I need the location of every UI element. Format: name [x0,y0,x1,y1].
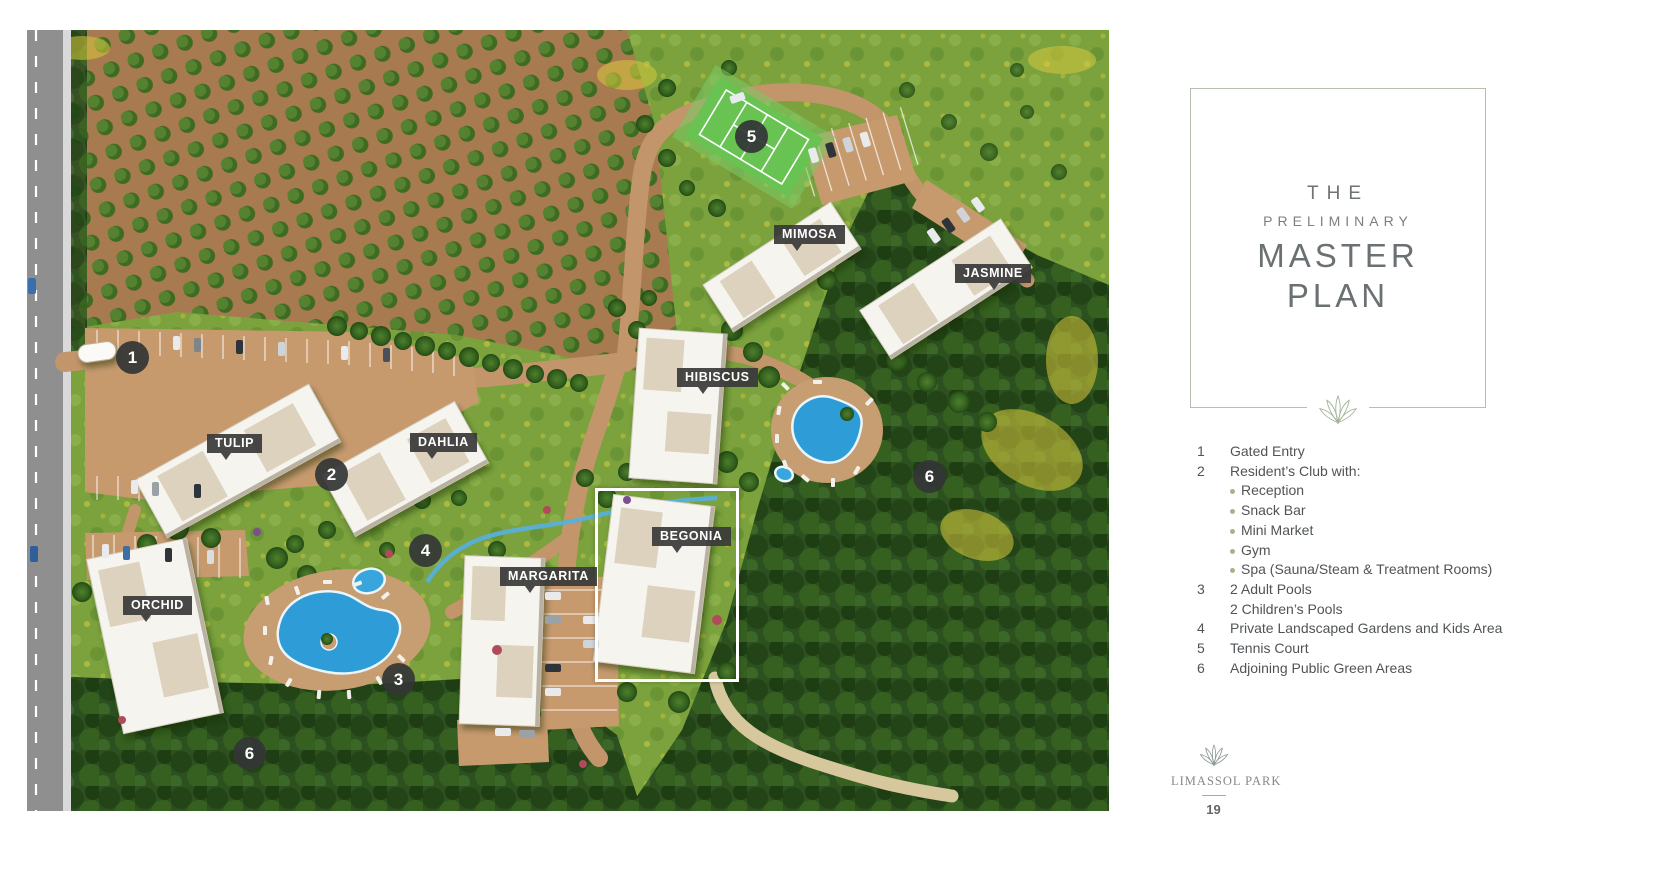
begonia-highlight-box [595,488,739,682]
brand-name: LIMASSOL PARK [1171,774,1256,789]
marker-2-residents-club: 2 [315,458,348,491]
bullet-dot-icon [1230,529,1235,534]
legend-item-3: 3 2 Adult Pools [1197,580,1527,600]
bullet-dot-icon [1230,489,1235,494]
building-label-margarita: MARGARITA [500,567,597,586]
legend-bullet-reception: Reception [1197,481,1527,501]
legend-text: Adjoining Public Green Areas [1230,659,1527,679]
legend-text: Gym [1241,541,1527,561]
legend-item-1: 1 Gated Entry [1197,442,1527,462]
bullet-dot-icon [1230,568,1235,573]
legend-number: 3 [1197,580,1230,600]
legend-text: Tennis Court [1230,639,1527,659]
legend-bullet-snack-bar: Snack Bar [1197,501,1527,521]
site-plan-svg [27,30,1109,811]
legend-item-2: 2 Resident’s Club with: [1197,462,1527,482]
legend-number: 5 [1197,639,1230,659]
legend-text: Gated Entry [1230,442,1527,462]
marker-4-gardens: 4 [409,534,442,567]
legend-text: Resident’s Club with: [1230,462,1527,482]
title-the: THE [1191,183,1485,205]
building-label-dahlia: DAHLIA [410,433,477,452]
legend-text: 2 Children’s Pools [1230,600,1527,620]
info-panel: THE PRELIMINARY MASTER PLAN 1 Gated Entr… [1109,0,1653,886]
title-preliminary: PRELIMINARY [1191,213,1485,229]
footer-divider [1202,795,1226,796]
marker-6-green-south: 6 [233,737,266,770]
legend-item-5: 5 Tennis Court [1197,639,1527,659]
lotus-leaf-icon [1307,392,1369,426]
bullet-dot-icon [1230,509,1235,514]
building-label-tulip: TULIP [207,434,262,453]
bullet-dot-icon [1230,549,1235,554]
page-footer: LIMASSOL PARK 19 [1171,742,1256,817]
master-plan-map: MIMOSA JASMINE HIBISCUS TULIP DAHLIA BEG… [27,30,1109,811]
master-plan-card: THE PRELIMINARY MASTER PLAN [1190,88,1486,408]
legend-bullet-spa: Spa (Sauna/Steam & Treatment Rooms) [1197,560,1527,580]
legend: 1 Gated Entry 2 Resident’s Club with: Re… [1197,442,1527,678]
legend-text: Mini Market [1241,521,1527,541]
marker-3-pools: 3 [382,663,415,696]
title-master: MASTER [1191,237,1485,275]
marker-1-gated-entry: 1 [116,341,149,374]
brochure-page: MIMOSA JASMINE HIBISCUS TULIP DAHLIA BEG… [0,0,1653,886]
brand-lotus-icon [1198,754,1230,771]
building-label-jasmine: JASMINE [955,264,1031,283]
building-label-orchid: ORCHID [123,596,192,615]
legend-bullet-gym: Gym [1197,541,1527,561]
page-number: 19 [1171,802,1256,817]
legend-text: Private Landscaped Gardens and Kids Area [1230,619,1527,639]
legend-number: 1 [1197,442,1230,462]
marker-6-green-east: 6 [913,460,946,493]
legend-number [1197,600,1230,620]
legend-text: Spa (Sauna/Steam & Treatment Rooms) [1241,560,1527,580]
title-plan: PLAN [1191,277,1485,315]
legend-item-4: 4 Private Landscaped Gardens and Kids Ar… [1197,619,1527,639]
legend-number: 4 [1197,619,1230,639]
legend-bullet-mini-market: Mini Market [1197,521,1527,541]
legend-number: 6 [1197,659,1230,679]
legend-number: 2 [1197,462,1230,482]
legend-text: Reception [1241,481,1527,501]
building-hibiscus [629,328,727,484]
building-label-begonia: BEGONIA [652,527,731,546]
legend-text: 2 Adult Pools [1230,580,1527,600]
building-label-hibiscus: HIBISCUS [677,368,758,387]
legend-item-6: 6 Adjoining Public Green Areas [1197,659,1527,679]
building-label-mimosa: MIMOSA [774,225,845,244]
legend-text: Snack Bar [1241,501,1527,521]
legend-item-3b: 2 Children’s Pools [1197,600,1527,620]
marker-5-tennis-court: 5 [735,120,768,153]
